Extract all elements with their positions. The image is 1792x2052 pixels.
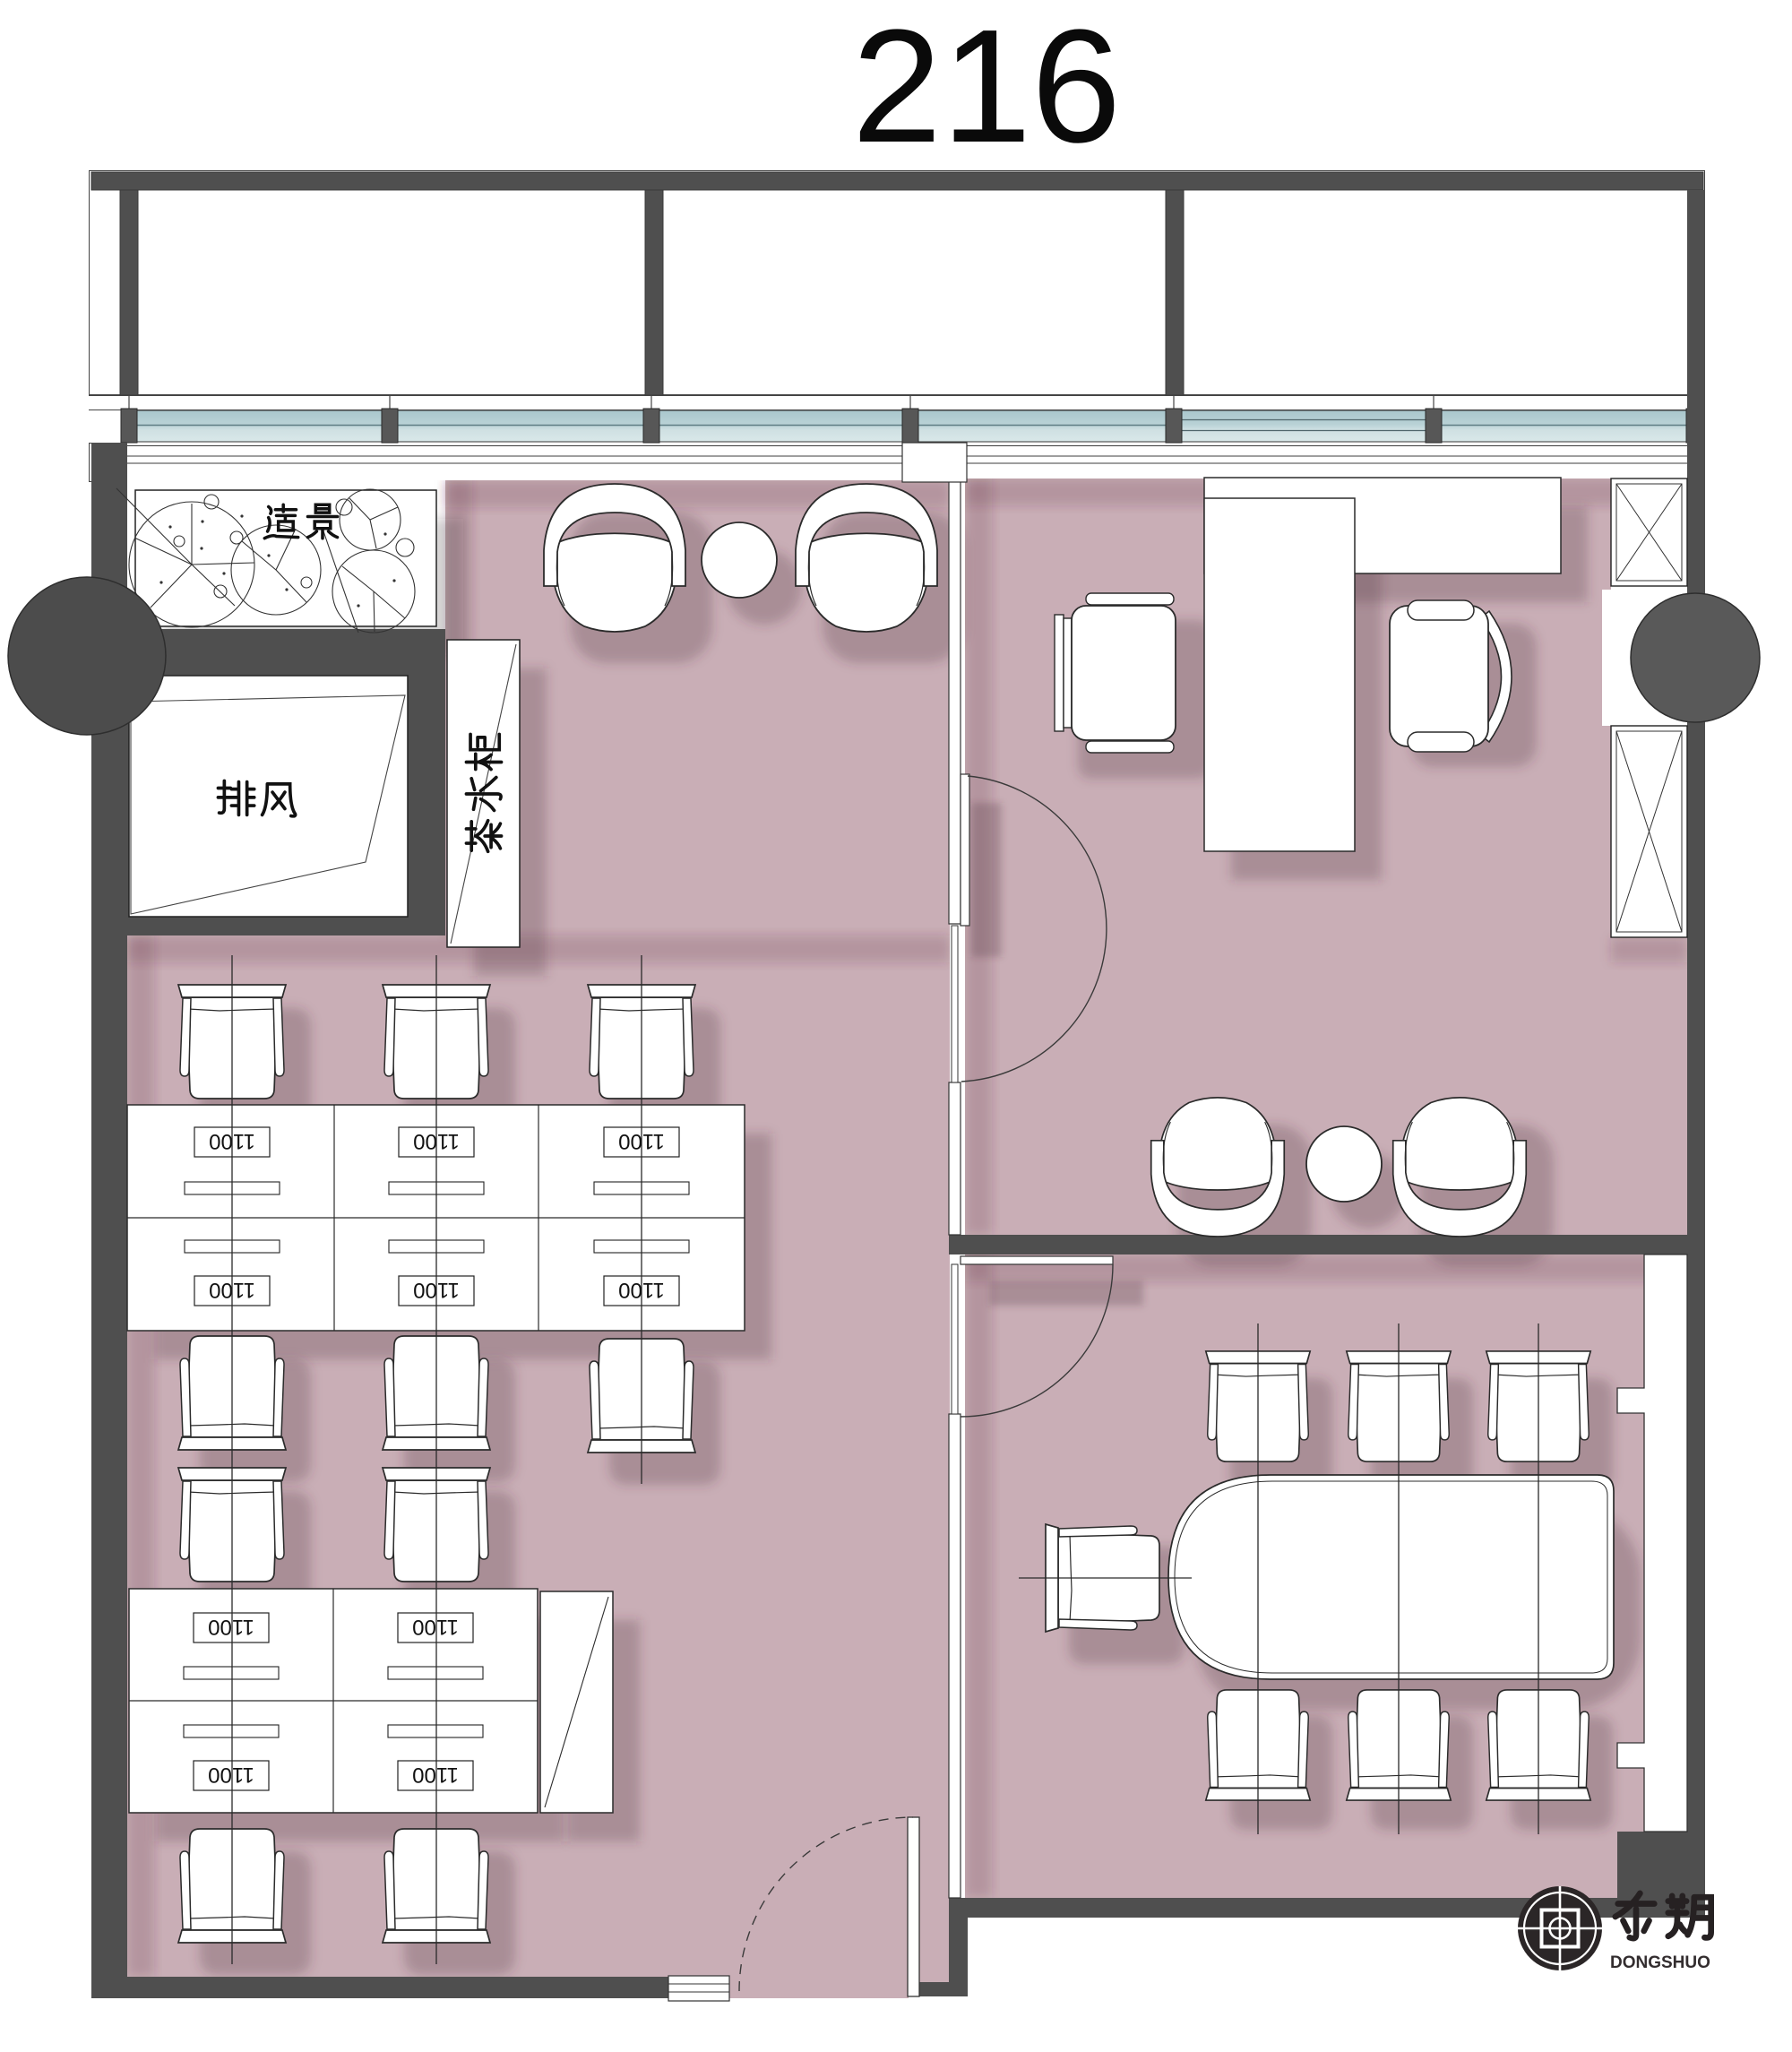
svg-text:1100: 1100 [208,1615,254,1639]
svg-text:1100: 1100 [412,1763,459,1787]
svg-text:DONGSHUO: DONGSHUO [1610,1953,1710,1972]
svg-text:1100: 1100 [208,1763,254,1787]
svg-text:216: 216 [852,0,1121,177]
svg-text:1100: 1100 [412,1615,459,1639]
